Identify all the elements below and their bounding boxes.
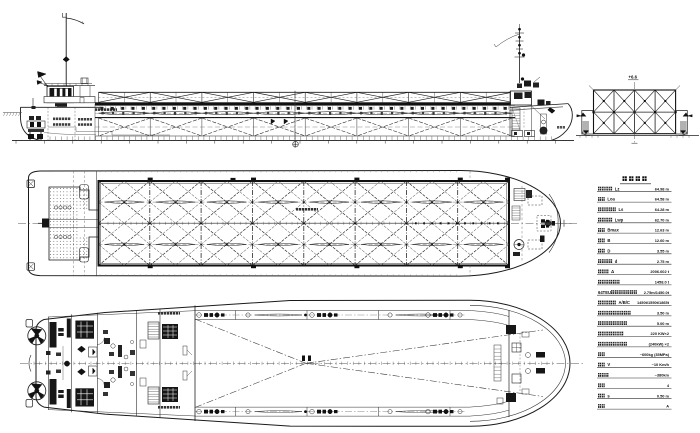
svg-text:3.55 m: 3.55 m xyxy=(657,248,670,253)
svg-text:A/B/C: A/B/C xyxy=(619,300,630,305)
svg-text:2.75 m: 2.75 m xyxy=(657,259,670,264)
svg-text:5.00 m: 5.00 m xyxy=(657,321,670,326)
svg-text:220 KW×2: 220 KW×2 xyxy=(651,331,670,336)
svg-text:2.75m/1450.0t: 2.75m/1450.0t xyxy=(644,290,670,295)
svg-text:~380km: ~380km xyxy=(655,373,670,378)
svg-text:12.60 m: 12.60 m xyxy=(655,238,670,243)
svg-text:Lwp: Lwp xyxy=(615,217,624,222)
svg-text:+6.6: +6.6 xyxy=(629,74,638,79)
svg-text:1458.0 t: 1458.0 t xyxy=(655,279,670,284)
svg-text:(240kW) ×2: (240kW) ×2 xyxy=(649,342,670,347)
svg-text:Δ: Δ xyxy=(611,269,614,274)
svg-text:Bmax: Bmax xyxy=(607,228,619,233)
svg-text:64.98 m: 64.98 m xyxy=(655,186,670,191)
svg-text:~10 Km/h: ~10 Km/h xyxy=(652,362,670,367)
svg-text:~600kg (35MPa): ~600kg (35MPa) xyxy=(640,352,670,357)
svg-text:64.28 m: 64.28 m xyxy=(655,207,670,212)
svg-text:2006.602 t: 2006.602 t xyxy=(650,269,669,274)
svg-text:V: V xyxy=(607,362,610,367)
svg-text:64TEU: 64TEU xyxy=(598,290,611,295)
svg-text:A: A xyxy=(666,404,669,409)
svg-text:1450t/1550t/1865t: 1450t/1550t/1865t xyxy=(637,300,670,305)
svg-text:D: D xyxy=(607,248,610,253)
svg-text:Lz: Lz xyxy=(615,186,620,191)
svg-text:Ls: Ls xyxy=(619,207,625,212)
svg-text:3.50 m: 3.50 m xyxy=(657,311,670,316)
svg-text:B: B xyxy=(607,238,610,243)
svg-text:Loa: Loa xyxy=(607,197,615,202)
svg-text:0.50 m: 0.50 m xyxy=(657,393,670,398)
svg-text:64.58 m: 64.58 m xyxy=(655,197,670,202)
svg-text:d: d xyxy=(615,259,618,264)
svg-text:62.70 m: 62.70 m xyxy=(655,217,670,222)
svg-text:12.63 m: 12.63 m xyxy=(655,228,670,233)
